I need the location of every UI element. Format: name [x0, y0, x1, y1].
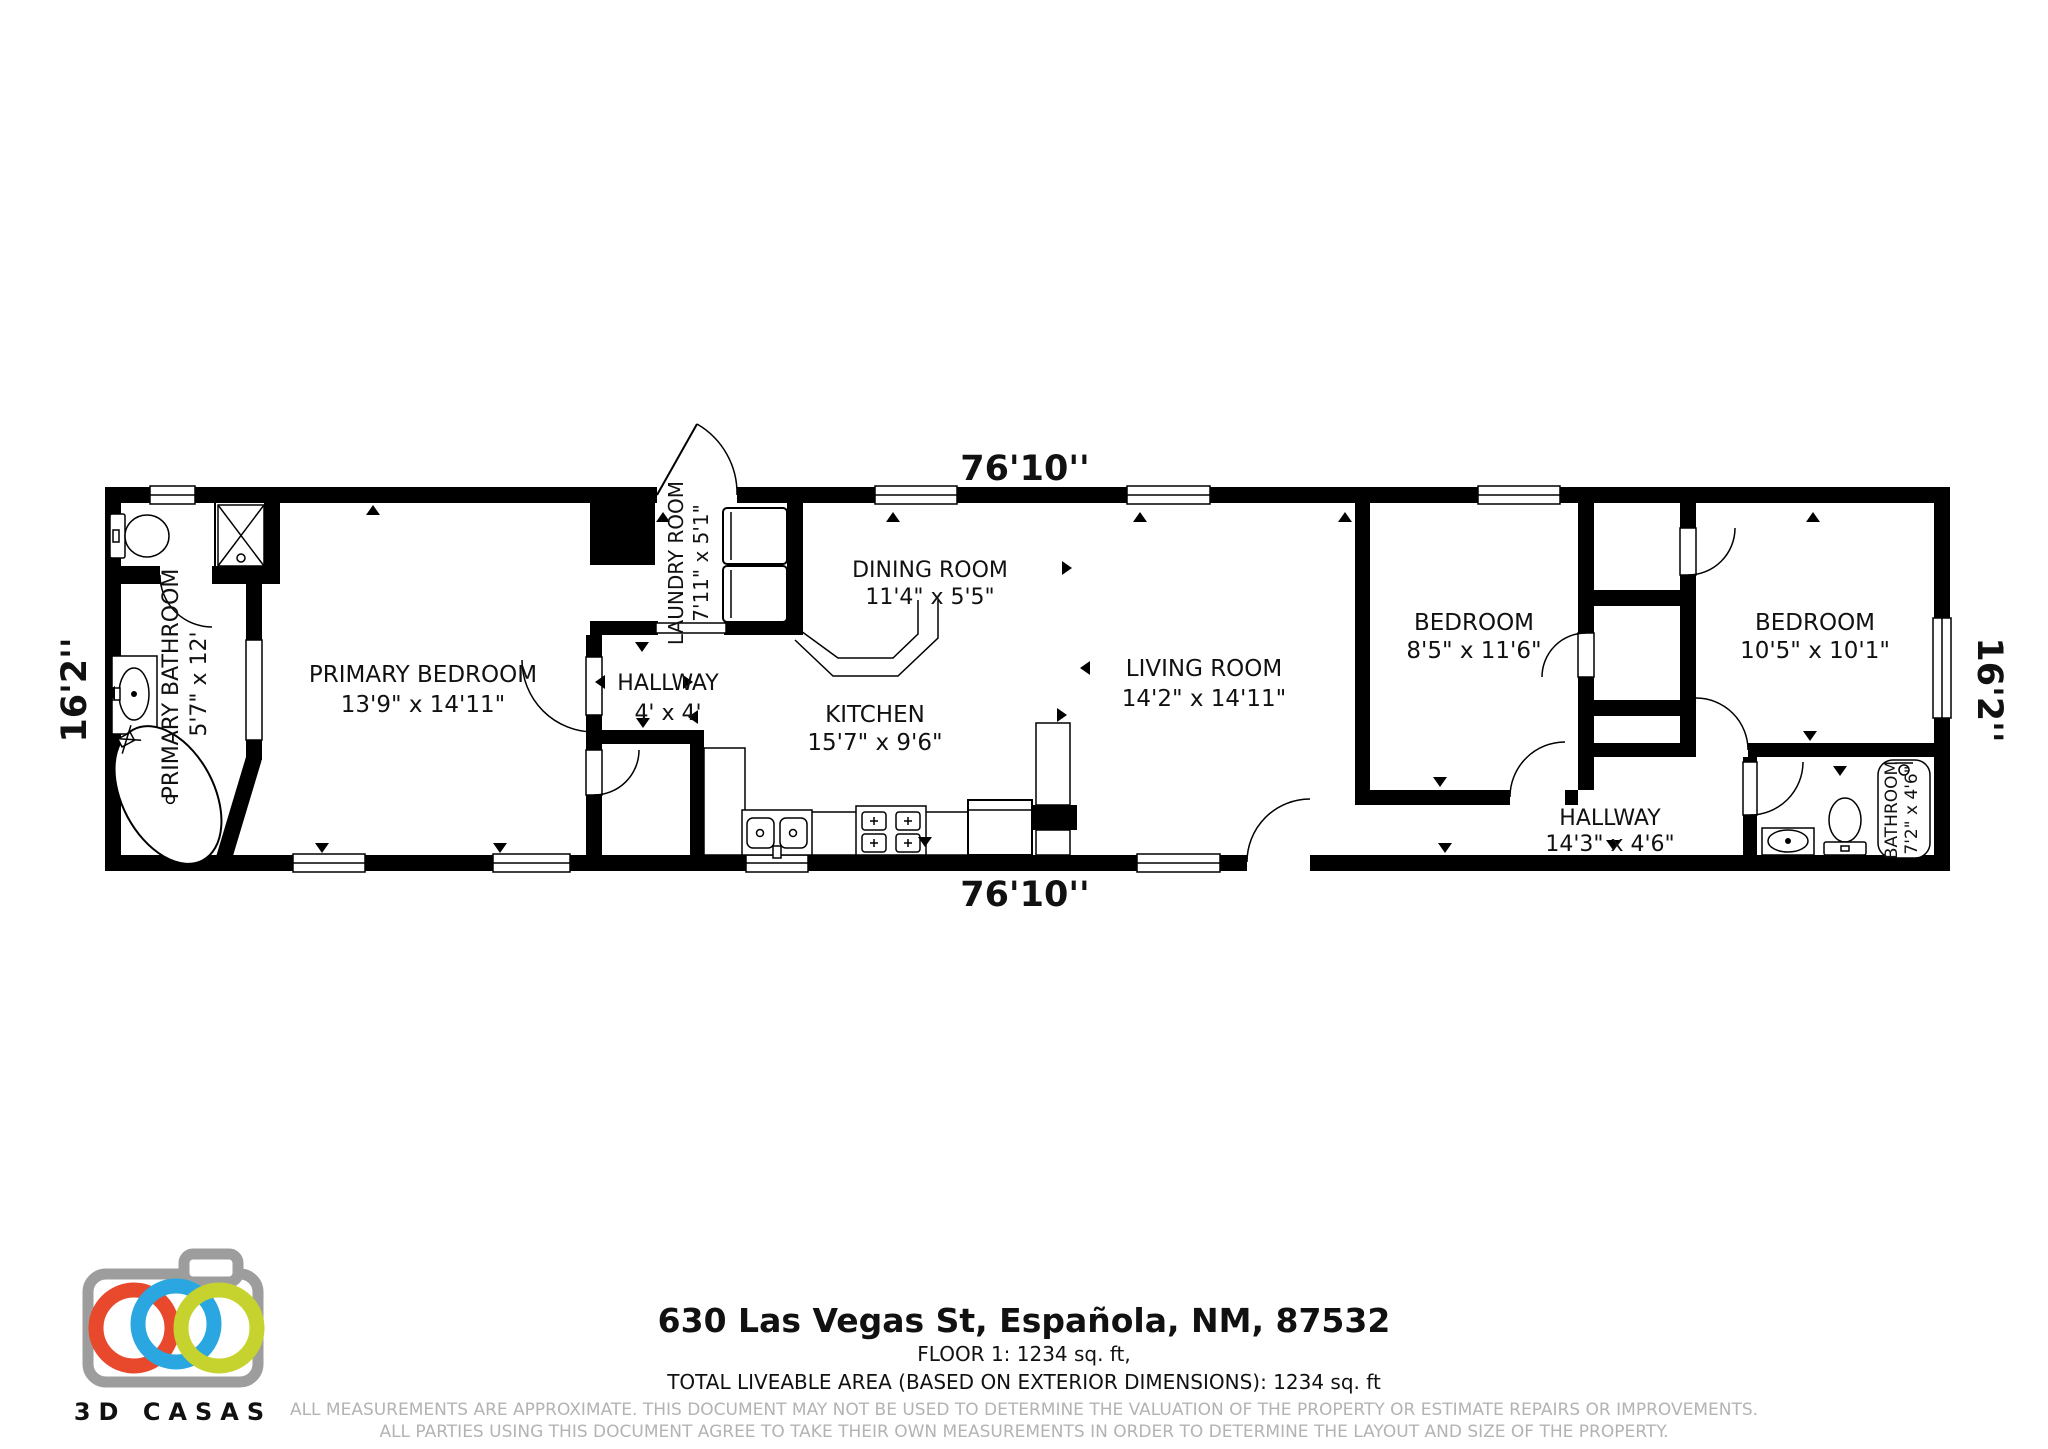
- room-dims: 7'11" x 5'1": [689, 504, 713, 622]
- room-name: HALLWAY: [617, 671, 719, 696]
- disclaimer-line-1: ALL MEASUREMENTS ARE APPROXIMATE. THIS D…: [290, 1400, 1758, 1420]
- total-area-line: TOTAL LIVEABLE AREA (BASED ON EXTERIOR D…: [666, 1370, 1381, 1394]
- brand-logo: 3D CASAS: [74, 1254, 272, 1426]
- room-dims: 4' x 4': [634, 701, 701, 726]
- stove-icon: [856, 806, 926, 855]
- closet-mid-door: [1542, 633, 1594, 677]
- room-dims: 14'3" x 4'6": [1545, 832, 1674, 857]
- room-label-kitchen: KITCHEN 15'7" x 9'6": [807, 702, 942, 756]
- window: [1137, 854, 1220, 872]
- room-dims: 15'7" x 9'6": [807, 730, 942, 756]
- kitchen-sink-icon: [742, 810, 812, 858]
- room-name: PRIMARY BEDROOM: [309, 662, 537, 688]
- window: [875, 486, 957, 504]
- washer-icon: [723, 508, 787, 564]
- room-label-laundry: LAUNDRY ROOM 7'11" x 5'1": [664, 481, 713, 645]
- room-label-dining: DINING ROOM 11'4" x 5'5": [852, 558, 1008, 610]
- room-label-living: LIVING ROOM 14'2" x 14'11": [1122, 656, 1286, 712]
- room-name: LAUNDRY ROOM: [664, 481, 688, 645]
- bedroom-corner-door: [1696, 698, 1748, 757]
- brand-name: 3D CASAS: [74, 1398, 272, 1426]
- room-label-hallway-center: HALLWAY 4' x 4': [617, 671, 719, 726]
- bedroom-small-door: [1510, 742, 1565, 805]
- room-dims: 5'7" x 12': [187, 631, 212, 736]
- window: [150, 486, 195, 504]
- room-dims: 11'4" x 5'5": [865, 585, 994, 610]
- room-name: DINING ROOM: [852, 558, 1008, 583]
- dimension-left: 16'2'': [55, 637, 95, 742]
- closet-top-door: [1680, 528, 1735, 575]
- bathroom-slab-door: [246, 640, 262, 740]
- bathroom2-sink-icon: [1762, 828, 1814, 855]
- dryer-icon: [723, 566, 787, 622]
- room-name: BEDROOM: [1755, 610, 1875, 636]
- window: [493, 854, 570, 872]
- room-label-hallway-right: HALLWAY 14'3" x 4'6": [1545, 806, 1674, 857]
- dimension-right: 16'2'': [1969, 637, 2009, 742]
- floor-area-line: FLOOR 1: 1234 sq. ft,: [917, 1342, 1130, 1366]
- room-dims: 14'2" x 14'11": [1122, 686, 1286, 712]
- pantry-cabinet: [1036, 723, 1070, 855]
- refrigerator-icon: [968, 800, 1032, 855]
- room-label-bedroom-small: BEDROOM 8'5" x 11'6": [1406, 610, 1541, 664]
- camera-bump-icon: [184, 1254, 238, 1282]
- room-name: LIVING ROOM: [1126, 656, 1283, 682]
- room-label-bedroom-corner: BEDROOM 10'5" x 10'1": [1740, 610, 1890, 664]
- toilet2-icon: [1824, 798, 1866, 855]
- floor-plan-page: 76'10'' 76'10'' 16'2'' 16'2'' PRIMARY BA…: [0, 0, 2048, 1449]
- window: [293, 854, 365, 872]
- toilet-icon: [110, 514, 169, 558]
- floor-plan-canvas: 76'10'' 76'10'' 16'2'' 16'2'' PRIMARY BA…: [0, 0, 2048, 1449]
- window: [1478, 486, 1560, 504]
- living-room-door: [1247, 799, 1310, 871]
- room-dims: 7'2" x 4'6": [1902, 765, 1922, 854]
- shower-icon: [218, 505, 264, 566]
- dimension-bottom: 76'10'': [960, 875, 1090, 915]
- closet-door: [586, 750, 639, 795]
- room-name: KITCHEN: [825, 702, 925, 728]
- footer: 630 Las Vegas St, Española, NM, 87532 FL…: [290, 1301, 1758, 1442]
- room-dims: 13'9" x 14'11": [341, 692, 505, 718]
- address-title: 630 Las Vegas St, Española, NM, 87532: [658, 1301, 1391, 1340]
- disclaimer-line-2: ALL PARTIES USING THIS DOCUMENT AGREE TO…: [379, 1422, 1668, 1442]
- window: [1127, 486, 1210, 504]
- bathroom-door: [1743, 762, 1803, 815]
- room-label-bathroom: BATHROOM 7'2" x 4'6": [1882, 761, 1922, 859]
- window: [1933, 618, 1951, 718]
- room-dims: 8'5" x 11'6": [1406, 638, 1541, 664]
- room-dims: 10'5" x 10'1": [1740, 638, 1890, 664]
- room-label-primary-bedroom: PRIMARY BEDROOM 13'9" x 14'11": [309, 662, 537, 718]
- room-name: PRIMARY BATHROOM: [159, 569, 184, 800]
- room-name: BEDROOM: [1414, 610, 1534, 636]
- room-name: BATHROOM: [1882, 761, 1902, 859]
- bathroom-sink-icon: [112, 656, 157, 734]
- room-name: HALLWAY: [1559, 806, 1661, 831]
- dimension-top: 76'10'': [960, 449, 1090, 489]
